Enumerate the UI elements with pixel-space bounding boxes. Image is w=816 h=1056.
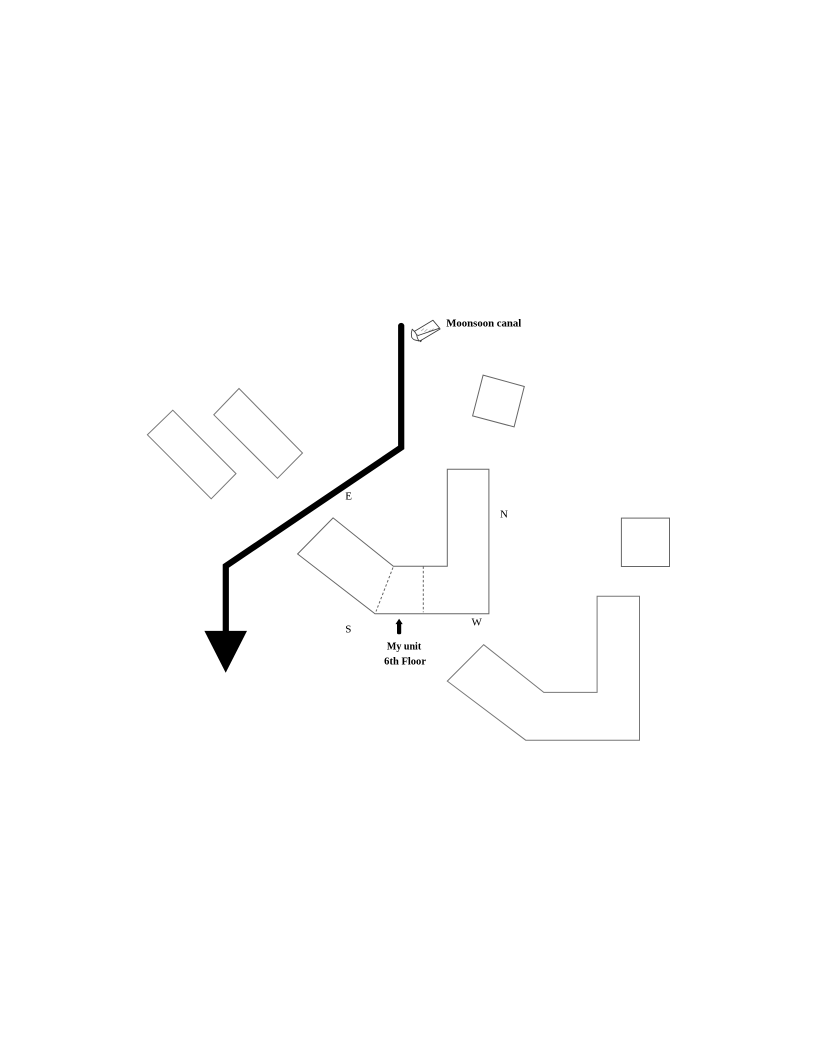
svg-text:W: W [472,616,483,628]
svg-text:Moonsoon canal: Moonsoon canal [446,317,521,329]
svg-text:6th Floor: 6th Floor [384,656,426,667]
svg-text:N: N [500,508,508,520]
svg-text:S: S [345,624,351,636]
svg-text:E: E [345,491,352,503]
svg-text:My unit: My unit [387,641,422,652]
